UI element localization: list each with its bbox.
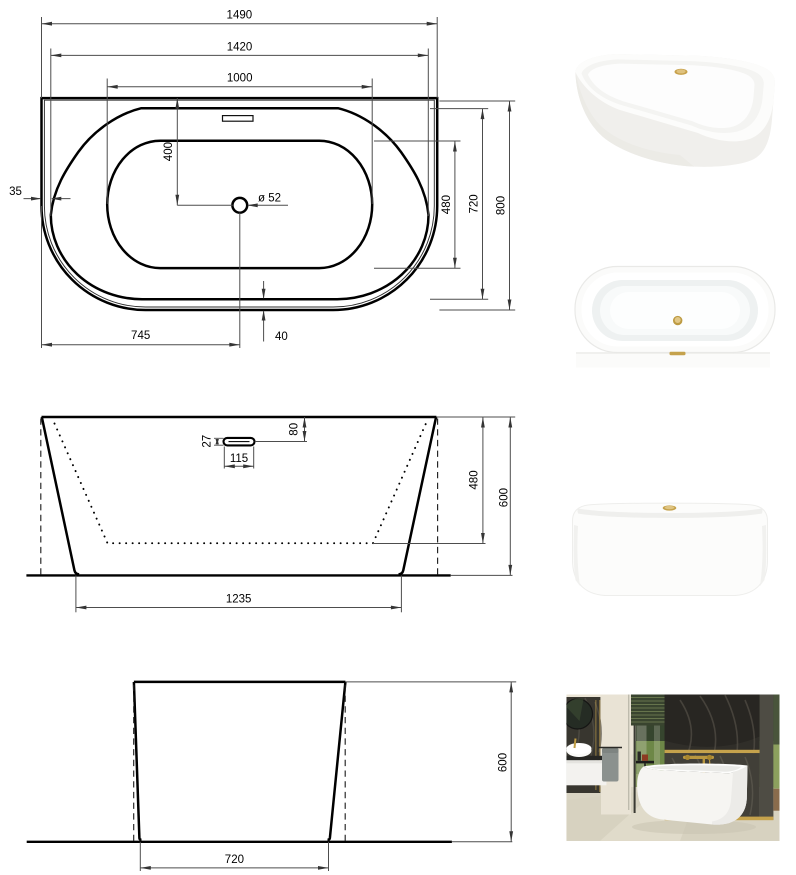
svg-text:720: 720 (225, 854, 244, 866)
svg-text:35: 35 (9, 186, 22, 198)
svg-text:1490: 1490 (227, 10, 253, 22)
svg-text:ø 52: ø 52 (258, 193, 281, 205)
svg-text:1235: 1235 (226, 594, 252, 606)
svg-text:480: 480 (468, 470, 480, 489)
svg-text:400: 400 (163, 142, 175, 161)
svg-text:115: 115 (230, 453, 248, 465)
svg-text:80: 80 (289, 423, 301, 436)
svg-text:1000: 1000 (227, 72, 253, 84)
svg-text:600: 600 (498, 753, 510, 772)
svg-text:745: 745 (131, 330, 150, 342)
svg-text:720: 720 (469, 194, 481, 213)
svg-text:27: 27 (202, 435, 214, 448)
svg-text:1420: 1420 (227, 41, 253, 53)
svg-text:600: 600 (498, 488, 510, 507)
svg-text:800: 800 (496, 196, 508, 215)
svg-text:480: 480 (441, 195, 453, 214)
svg-text:40: 40 (275, 331, 288, 343)
